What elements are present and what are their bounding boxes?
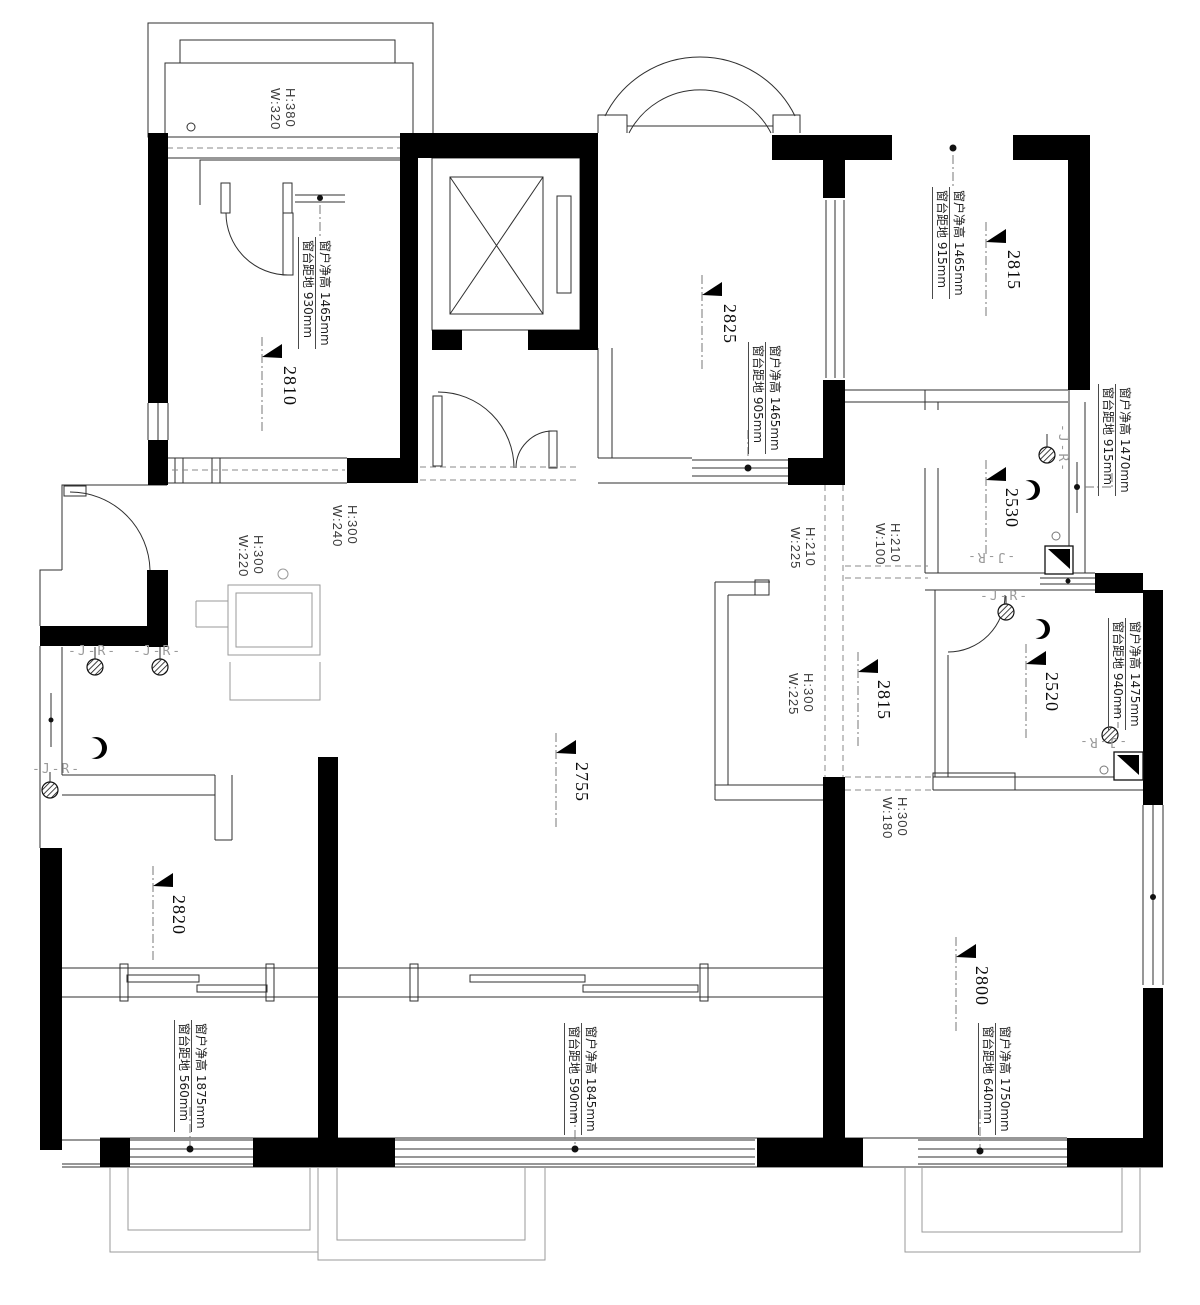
opening-height: H:300: [345, 505, 360, 547]
level-marker-icon: [702, 282, 722, 296]
basin-icon: [1027, 619, 1050, 639]
floor-drain-icon: [152, 659, 168, 675]
opening-width: W:320: [268, 88, 283, 130]
floor-drain-icon: [87, 659, 103, 675]
window-height-label: 窗户净高 1875mm: [191, 1020, 208, 1132]
window-note-bottom-mid: 窗户净高 1845mm 窗台距地 590mm: [564, 1023, 598, 1135]
level-marker-top-mid: 2825: [720, 304, 739, 344]
water-point-label: -J-R-: [32, 762, 81, 777]
level-marker-icon: [858, 659, 878, 673]
opening-label-hall-top: H:210 W:225: [788, 527, 818, 569]
window-note-bottom-right: 窗户净高 1750mm 窗台距地 640mm: [978, 1023, 1012, 1135]
opening-height: H:300: [251, 535, 266, 577]
window-sill-label: 窗台距地 905mm: [748, 342, 765, 454]
level-marker-icon: [956, 944, 976, 958]
opening-label-bedroom-right: H:300 W:180: [880, 797, 910, 839]
opening-height: H:210: [888, 523, 903, 565]
opening-width: W:180: [880, 797, 895, 839]
opening-width: W:220: [236, 535, 251, 577]
water-point-label: -J-R-: [133, 644, 182, 659]
window-height-label: 窗户净高 1465mm: [949, 187, 966, 299]
window-sill-label: 窗台距地 940mm: [1108, 618, 1125, 730]
opening-width: W:225: [786, 673, 801, 715]
opening-height: H:380: [283, 88, 298, 130]
window-sill-label: 窗台距地 560mm: [174, 1020, 191, 1132]
level-marker-bottom-left: 2820: [169, 895, 188, 935]
opening-label-hall-mid: H:300 W:225: [786, 673, 816, 715]
small-fixture-icon: [1100, 766, 1108, 774]
opening-width: W:225: [788, 527, 803, 569]
level-marker-icon: [986, 467, 1006, 481]
window-note-top-mid: 窗户净高 1465mm 窗台距地 905mm: [748, 342, 782, 454]
level-marker-icon: [153, 873, 173, 887]
window-sill-label: 窗台距地 915mm: [1098, 384, 1115, 496]
water-point-label: -J-R-: [1055, 424, 1070, 473]
level-marker-icon: [1026, 651, 1046, 665]
opening-width: W:100: [873, 523, 888, 565]
window-height-label: 窗户净高 1475mm: [1125, 618, 1142, 730]
window-note-top-left: 窗户净高 1465mm 窗台距地 930mm: [298, 237, 332, 349]
window-note-bath2: 窗户净高 1475mm 窗台距地 940mm: [1108, 618, 1142, 730]
floor-plan: 2810 2825 2815 2530 2520 2815 2755 2820 …: [0, 0, 1200, 1305]
window-note-bottom-left: 窗户净高 1875mm 窗台距地 560mm: [174, 1020, 208, 1132]
level-marker-bath2: 2520: [1042, 672, 1061, 712]
window-height-label: 窗户净高 1750mm: [995, 1023, 1012, 1135]
walls: [40, 133, 1163, 1167]
level-marker-bottom-right: 2800: [972, 966, 991, 1006]
level-marker-living: 2755: [572, 762, 591, 802]
level-marker-bath1: 2530: [1002, 488, 1021, 528]
window-height-label: 窗户净高 1465mm: [315, 237, 332, 349]
floor-drain-icon: [42, 782, 58, 798]
water-point-label: -J-R-: [980, 589, 1029, 604]
opening-height: H:210: [803, 527, 818, 569]
window-note-bath1: 窗户净高 1470mm 窗台距地 915mm: [1098, 384, 1132, 496]
opening-height: H:300: [895, 797, 910, 839]
level-marker-top-right: 2815: [1004, 250, 1023, 290]
water-point-label: -J-R-: [966, 549, 1015, 564]
floor-drain-icon: [998, 604, 1014, 620]
basin-icon: [82, 737, 107, 759]
basin-icons: [82, 480, 1050, 759]
opening-height: H:300: [801, 673, 816, 715]
window-sill-label: 窗台距地 640mm: [978, 1023, 995, 1135]
level-marker-hall: 2815: [874, 680, 893, 720]
level-marker-icon: [986, 229, 1006, 243]
floor-drain-icon: [1039, 447, 1055, 463]
opening-label-hall-left: H:300 W:240: [330, 505, 360, 547]
opening-label-entry: H:300 W:220: [236, 535, 266, 577]
plumbing-fixtures: [42, 447, 1143, 798]
window-note-top-right: 窗户净高 1465mm 窗台距地 915mm: [932, 187, 966, 299]
water-point-label: -J-R-: [68, 644, 117, 659]
opening-width: W:240: [330, 505, 345, 547]
small-fixture-icon: [1052, 532, 1060, 540]
window-sill-label: 窗台距地 590mm: [564, 1023, 581, 1135]
window-sill-label: 窗台距地 930mm: [298, 237, 315, 349]
opening-label-balcony-top-left: H:380 W:320: [268, 88, 298, 130]
opening-label-bath-hall: H:210 W:100: [873, 523, 903, 565]
level-marker-icon: [262, 344, 282, 358]
window-height-label: 窗户净高 1845mm: [581, 1023, 598, 1135]
window-height-label: 窗户净高 1470mm: [1115, 384, 1132, 496]
level-marker-top-left: 2810: [280, 366, 299, 406]
window-height-label: 窗户净高 1465mm: [765, 342, 782, 454]
level-marker-icon: [556, 740, 576, 754]
window-sill-label: 窗台距地 915mm: [932, 187, 949, 299]
water-point-label: -J-R-: [1078, 734, 1127, 749]
